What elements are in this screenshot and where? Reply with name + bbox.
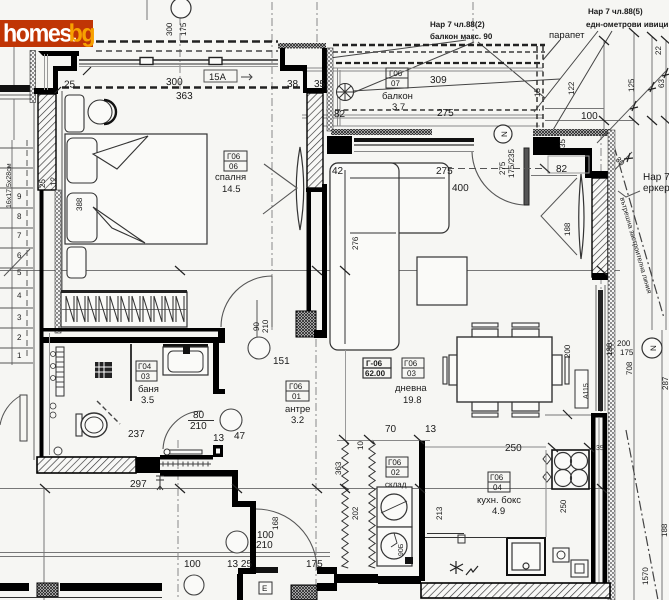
svg-text:188: 188 <box>563 222 572 236</box>
svg-text:03: 03 <box>141 372 150 381</box>
svg-text:82: 82 <box>556 164 568 175</box>
svg-text:90: 90 <box>252 322 261 331</box>
svg-text:188: 188 <box>660 523 669 537</box>
svg-text:Г06: Г06 <box>388 458 402 467</box>
svg-text:175: 175 <box>306 559 323 570</box>
svg-text:175: 175 <box>620 348 634 357</box>
svg-text:100: 100 <box>581 111 598 122</box>
svg-text:125: 125 <box>627 78 636 92</box>
svg-text:N: N <box>649 345 658 351</box>
svg-text:275: 275 <box>436 166 453 177</box>
svg-text:175: 175 <box>179 22 188 36</box>
svg-text:парапет: парапет <box>549 30 585 41</box>
svg-text:80: 80 <box>193 410 205 421</box>
svg-text:210: 210 <box>190 421 207 432</box>
svg-text:237: 237 <box>128 429 145 440</box>
svg-text:10: 10 <box>356 441 365 450</box>
svg-text:4: 4 <box>17 291 22 300</box>
svg-text:4.9: 4.9 <box>492 506 505 517</box>
svg-text:баня: баня <box>138 384 159 395</box>
svg-text:275: 275 <box>437 108 454 119</box>
svg-text:01: 01 <box>292 392 301 401</box>
svg-text:bg: bg <box>69 20 95 48</box>
svg-text:04: 04 <box>493 483 502 492</box>
svg-text:Г06: Г06 <box>404 359 418 368</box>
svg-text:Г06: Г06 <box>389 69 403 78</box>
svg-text:16х17,5х28см: 16х17,5х28см <box>6 163 13 208</box>
svg-text:2: 2 <box>17 333 22 342</box>
svg-text:19.8: 19.8 <box>403 395 422 406</box>
svg-text:1: 1 <box>17 351 22 360</box>
svg-text:42: 42 <box>332 166 344 177</box>
svg-text:5: 5 <box>17 268 22 277</box>
svg-text:25: 25 <box>38 179 47 188</box>
svg-text:8: 8 <box>17 212 22 221</box>
svg-text:15А: 15А <box>209 72 227 83</box>
svg-text:70: 70 <box>385 424 397 435</box>
svg-text:02: 02 <box>391 468 400 477</box>
svg-text:25: 25 <box>64 80 76 91</box>
svg-text:3.2: 3.2 <box>291 415 304 426</box>
svg-text:213: 213 <box>435 506 444 520</box>
svg-text:300: 300 <box>165 22 174 36</box>
svg-text:276: 276 <box>351 236 360 250</box>
svg-text:13: 13 <box>213 433 225 444</box>
svg-text:38: 38 <box>287 79 299 90</box>
svg-text:3.7: 3.7 <box>392 102 405 113</box>
svg-text:250: 250 <box>505 443 522 454</box>
svg-text:190: 190 <box>605 342 614 356</box>
svg-text:200: 200 <box>563 344 572 358</box>
svg-text:202: 202 <box>351 506 360 520</box>
svg-text:22: 22 <box>654 46 663 55</box>
svg-text:кухн. бокс: кухн. бокс <box>477 495 521 506</box>
svg-text:122: 122 <box>567 81 576 95</box>
svg-text:7: 7 <box>17 231 22 240</box>
svg-text:балкон макс. 90: балкон макс. 90 <box>430 32 493 41</box>
svg-text:35: 35 <box>314 79 326 90</box>
svg-text:еркер 3: еркер 3 <box>643 183 669 194</box>
svg-text:708: 708 <box>625 361 634 375</box>
svg-text:82: 82 <box>334 109 346 120</box>
svg-text:Е: Е <box>262 584 267 593</box>
svg-text:210: 210 <box>256 540 273 551</box>
svg-text:спалня: спалня <box>215 172 246 183</box>
svg-text:35: 35 <box>558 139 567 148</box>
svg-text:03: 03 <box>407 369 416 378</box>
svg-text:антре: антре <box>285 404 310 415</box>
svg-text:287: 287 <box>661 376 669 390</box>
svg-text:homes.: homes. <box>3 20 77 48</box>
svg-text:N: N <box>500 131 509 137</box>
svg-text:едн-ометрови ивици: едн-ометрови ивици <box>586 20 668 29</box>
svg-text:13: 13 <box>425 424 437 435</box>
svg-text:200: 200 <box>617 339 631 348</box>
svg-text:Нар 7 чл.88(5): Нар 7 чл.88(5) <box>588 7 643 16</box>
svg-text:9: 9 <box>17 192 22 201</box>
svg-text:Г06: Г06 <box>289 382 303 391</box>
svg-text:дневна: дневна <box>395 383 427 394</box>
svg-text:63: 63 <box>657 79 666 88</box>
svg-text:151: 151 <box>273 356 290 367</box>
svg-text:Нар 7 ч: Нар 7 ч <box>643 172 669 183</box>
svg-text:Г06: Г06 <box>227 152 241 161</box>
svg-text:Нар 7 чл.88(2): Нар 7 чл.88(2) <box>430 20 485 29</box>
svg-text:3.5: 3.5 <box>141 395 154 406</box>
svg-text:1570: 1570 <box>641 567 650 585</box>
svg-text:6: 6 <box>17 251 22 260</box>
svg-text:388: 388 <box>75 197 84 211</box>
svg-text:297: 297 <box>130 479 147 490</box>
svg-text:62.00: 62.00 <box>365 369 386 378</box>
svg-text:Г06: Г06 <box>490 473 504 482</box>
svg-text:Г04: Г04 <box>138 362 152 371</box>
svg-text:175/235: 175/235 <box>507 149 516 178</box>
svg-text:склад: склад <box>385 480 407 489</box>
svg-text:07: 07 <box>391 79 400 88</box>
svg-text:300: 300 <box>166 77 183 88</box>
svg-text:06: 06 <box>229 162 238 171</box>
svg-text:12: 12 <box>49 177 58 186</box>
svg-text:47: 47 <box>234 431 246 442</box>
svg-text:309: 309 <box>430 75 447 86</box>
svg-text:275: 275 <box>498 161 507 175</box>
svg-text:А115: А115 <box>583 383 590 399</box>
svg-text:363: 363 <box>176 91 193 102</box>
svg-text:100: 100 <box>184 559 201 570</box>
svg-text:168: 168 <box>271 516 280 530</box>
svg-text:363: 363 <box>334 461 343 475</box>
svg-text:35: 35 <box>596 445 604 452</box>
svg-text:210: 210 <box>261 319 270 333</box>
svg-text:балкон: балкон <box>382 91 413 102</box>
svg-text:14.5: 14.5 <box>222 184 241 195</box>
svg-text:Г-06: Г-06 <box>366 359 383 368</box>
svg-text:90Б: 90Б <box>398 543 405 556</box>
svg-text:250: 250 <box>559 499 568 513</box>
svg-text:400: 400 <box>452 183 469 194</box>
svg-text:3: 3 <box>17 313 22 322</box>
svg-text:13 25: 13 25 <box>227 559 252 570</box>
svg-text:15: 15 <box>533 88 542 97</box>
